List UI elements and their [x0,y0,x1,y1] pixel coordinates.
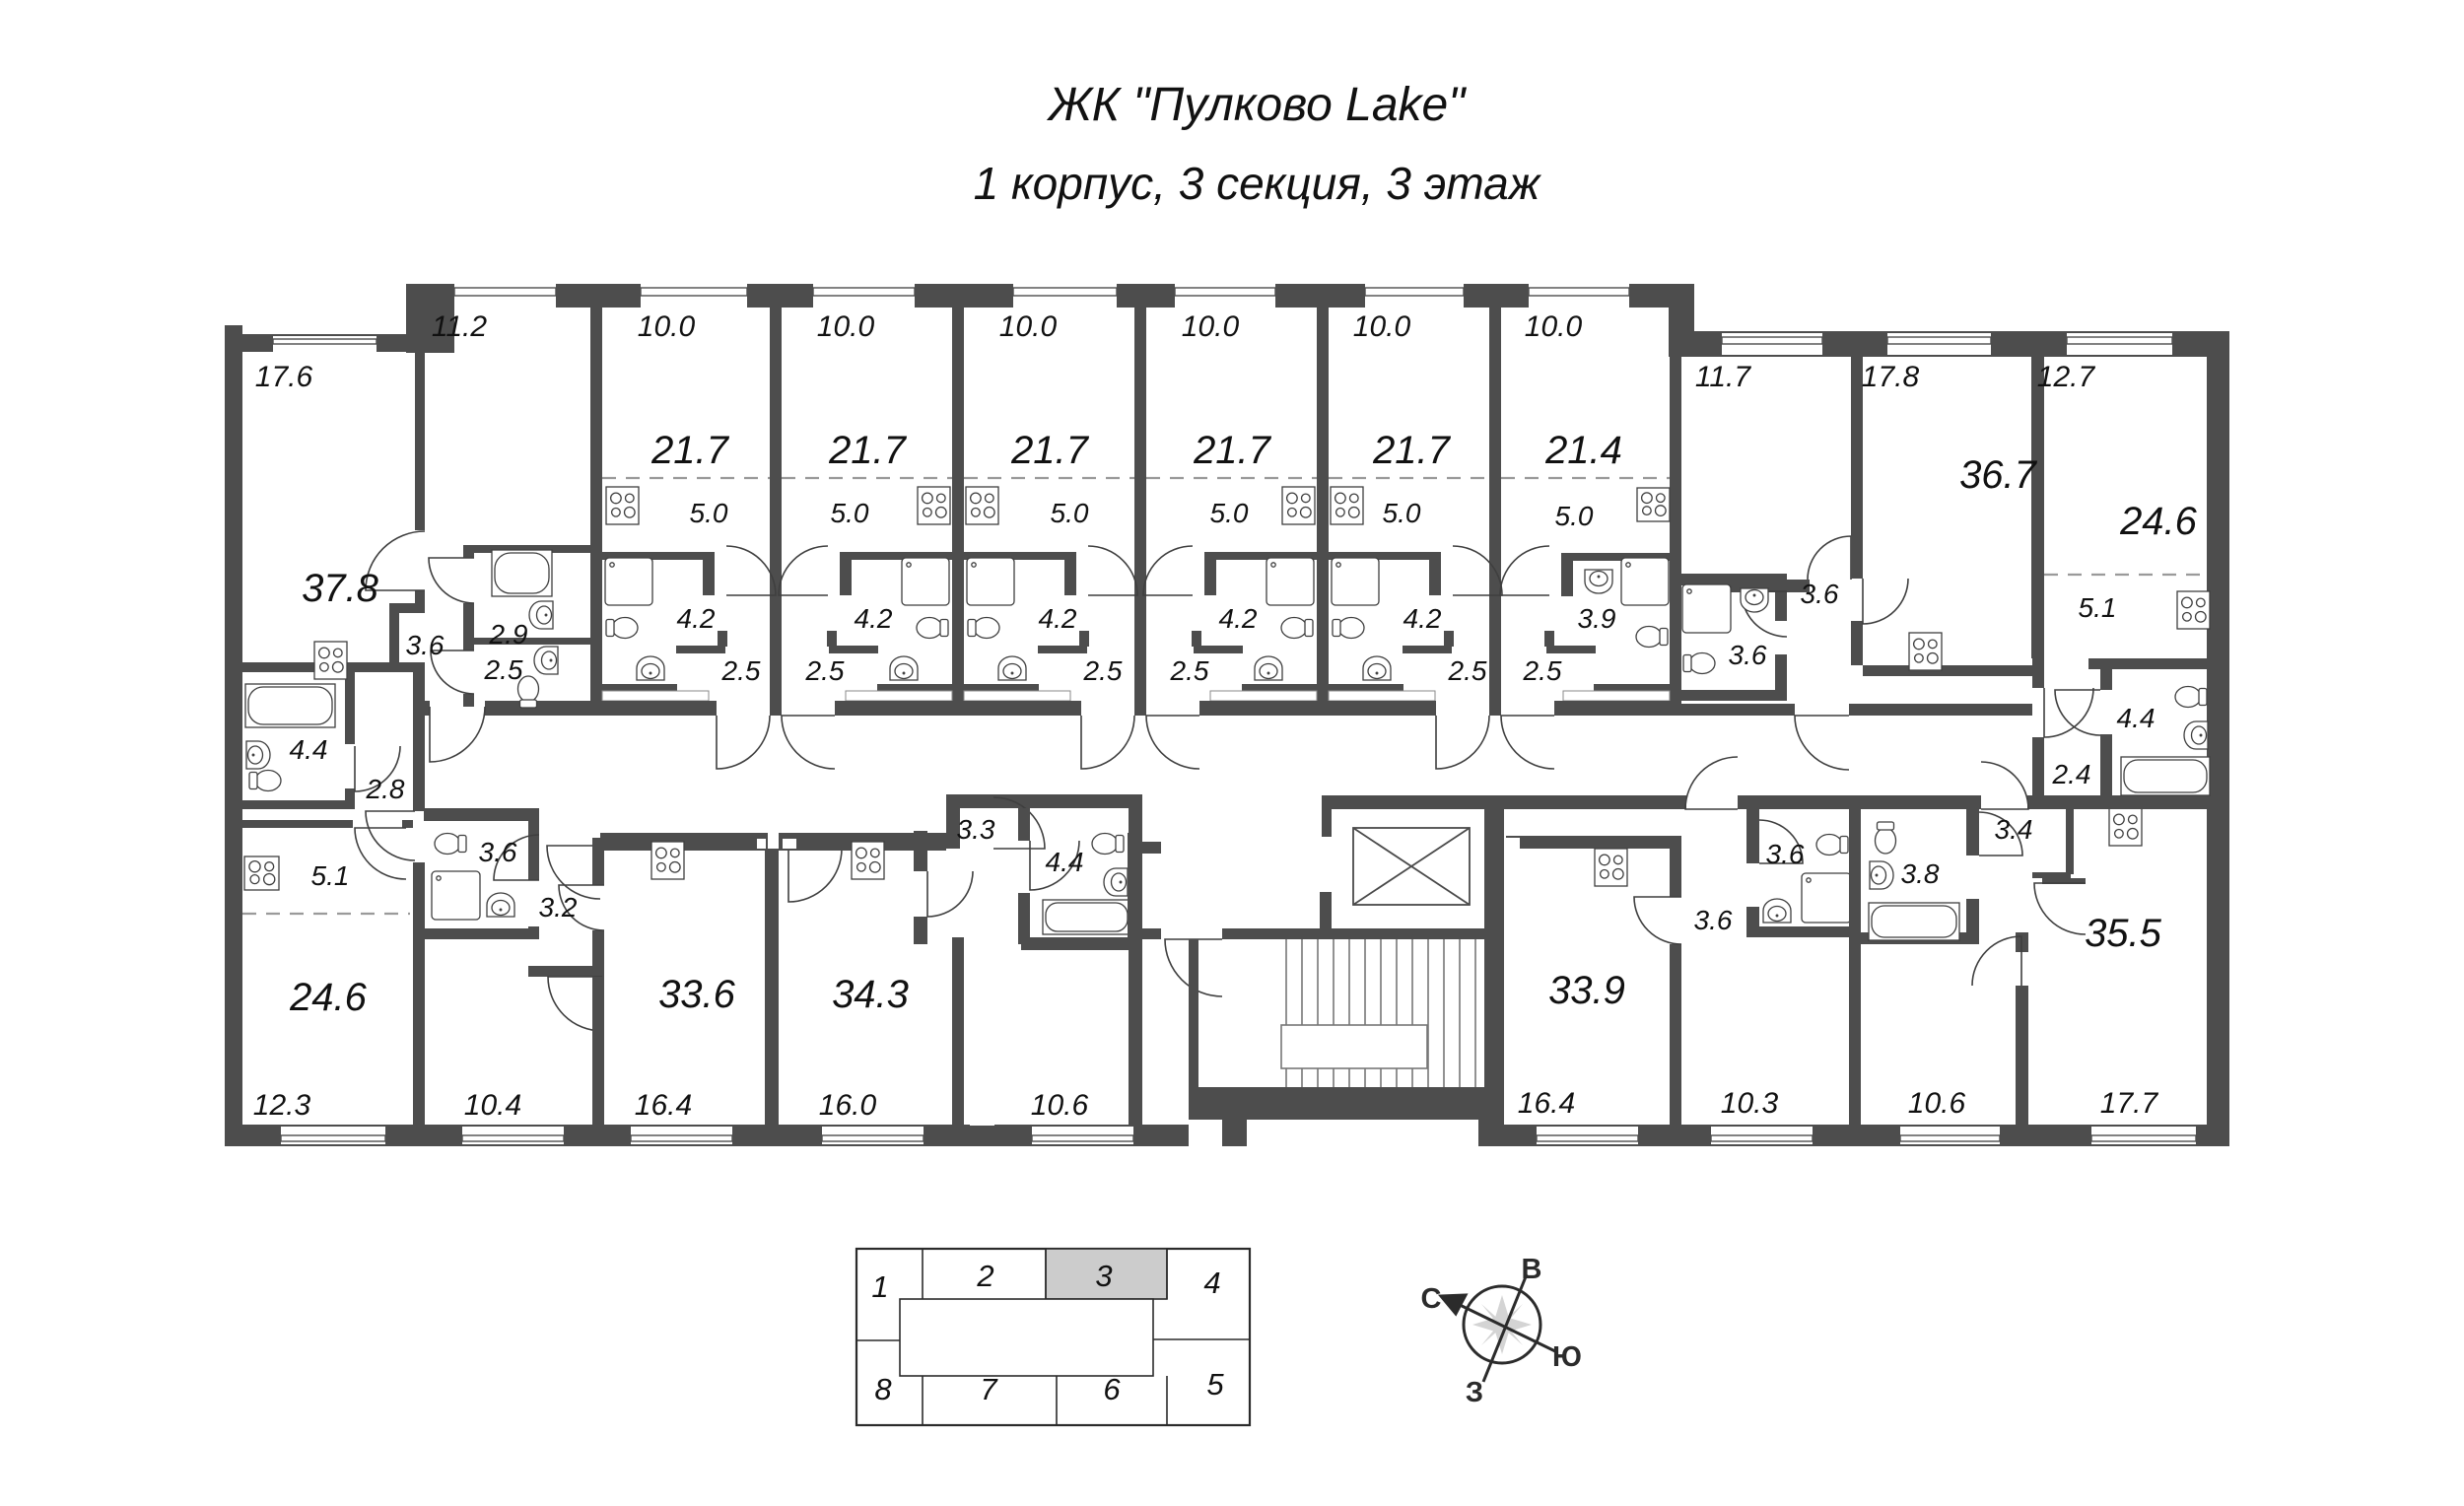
svg-text:17.8: 17.8 [1862,361,1920,393]
svg-text:2.9: 2.9 [489,619,528,650]
svg-text:Ю: Ю [1552,1341,1582,1373]
svg-text:5.0: 5.0 [1210,498,1249,528]
svg-text:16.0: 16.0 [819,1089,877,1122]
svg-text:10.3: 10.3 [1721,1087,1779,1120]
svg-text:21.7: 21.7 [1193,429,1272,472]
svg-text:16.4: 16.4 [1518,1087,1575,1120]
svg-text:10.4: 10.4 [464,1089,521,1122]
svg-text:21.7: 21.7 [650,429,730,472]
svg-text:35.5: 35.5 [2085,912,2162,955]
svg-text:4.4: 4.4 [1046,847,1084,877]
svg-text:В: В [1522,1254,1542,1285]
svg-text:3.6: 3.6 [1801,579,1839,609]
svg-text:2.5: 2.5 [1448,655,1487,686]
svg-text:5.1: 5.1 [2079,592,2117,623]
svg-text:3.4: 3.4 [1995,814,2033,845]
svg-text:4.2: 4.2 [1219,603,1258,634]
svg-text:ЖК "Пулково Lake": ЖК "Пулково Lake" [1047,79,1467,131]
svg-text:3: 3 [1095,1259,1112,1293]
svg-text:33.9: 33.9 [1548,969,1625,1012]
svg-text:34.3: 34.3 [832,973,909,1016]
svg-text:3.9: 3.9 [1578,603,1616,634]
svg-text:С: С [1421,1283,1442,1315]
svg-text:3.6: 3.6 [1729,640,1767,670]
svg-text:17.7: 17.7 [2100,1087,2159,1120]
svg-text:2.4: 2.4 [2052,759,2091,789]
svg-text:7: 7 [980,1372,998,1406]
svg-text:10.0: 10.0 [1525,310,1583,343]
svg-text:2.5: 2.5 [1170,655,1209,686]
svg-text:10.0: 10.0 [1182,310,1240,343]
svg-text:3.6: 3.6 [406,630,445,660]
svg-text:4.2: 4.2 [677,603,716,634]
svg-text:10.0: 10.0 [817,310,875,343]
svg-text:10.6: 10.6 [1908,1087,1966,1120]
svg-text:4.4: 4.4 [2117,703,2156,733]
svg-text:10.0: 10.0 [638,310,696,343]
svg-text:21.7: 21.7 [1372,429,1452,472]
svg-text:12.3: 12.3 [253,1089,311,1122]
svg-text:5.0: 5.0 [1383,498,1421,528]
svg-text:21.4: 21.4 [1544,429,1622,472]
svg-text:4.2: 4.2 [1403,603,1442,634]
svg-text:12.7: 12.7 [2037,361,2096,393]
svg-text:5.0: 5.0 [831,498,869,528]
svg-text:2.8: 2.8 [366,774,405,804]
svg-text:2.5: 2.5 [484,654,523,685]
svg-text:2.5: 2.5 [721,655,761,686]
svg-text:21.7: 21.7 [828,429,908,472]
svg-text:1: 1 [871,1269,888,1304]
svg-text:5.0: 5.0 [1555,501,1594,531]
svg-text:11.7: 11.7 [1695,361,1751,393]
svg-text:3.2: 3.2 [539,892,578,923]
svg-text:2.5: 2.5 [1523,655,1562,686]
svg-text:2.5: 2.5 [805,655,845,686]
svg-text:5.0: 5.0 [690,498,728,528]
svg-text:24.6: 24.6 [289,976,368,1019]
svg-text:3.6: 3.6 [1694,905,1733,935]
svg-text:4: 4 [1203,1266,1220,1300]
svg-text:10.6: 10.6 [1031,1089,1089,1122]
svg-text:21.7: 21.7 [1010,429,1090,472]
svg-text:2: 2 [976,1259,993,1293]
svg-text:16.4: 16.4 [635,1089,692,1122]
svg-text:3.6: 3.6 [479,837,517,867]
svg-text:33.6: 33.6 [658,973,736,1016]
svg-text:6: 6 [1103,1372,1121,1406]
svg-text:З: З [1466,1377,1483,1408]
svg-text:36.7: 36.7 [1959,453,2038,497]
svg-text:10.0: 10.0 [999,310,1058,343]
svg-text:5.1: 5.1 [311,860,350,891]
svg-text:3.8: 3.8 [1901,858,1940,889]
svg-text:2.5: 2.5 [1083,655,1123,686]
svg-text:10.0: 10.0 [1353,310,1411,343]
svg-text:5.0: 5.0 [1051,498,1089,528]
svg-text:3.3: 3.3 [957,814,995,845]
svg-text:1 корпус, 3 секция, 3 этаж: 1 корпус, 3 секция, 3 этаж [974,158,1542,209]
svg-text:8: 8 [874,1372,892,1406]
svg-text:37.8: 37.8 [302,567,379,610]
svg-text:4.4: 4.4 [290,734,328,765]
svg-text:3.6: 3.6 [1766,839,1805,869]
svg-text:4.2: 4.2 [1039,603,1077,634]
svg-text:11.2: 11.2 [432,310,487,343]
svg-text:4.2: 4.2 [855,603,893,634]
svg-text:24.6: 24.6 [2119,500,2198,543]
svg-text:5: 5 [1206,1367,1224,1402]
svg-text:17.6: 17.6 [255,361,313,393]
